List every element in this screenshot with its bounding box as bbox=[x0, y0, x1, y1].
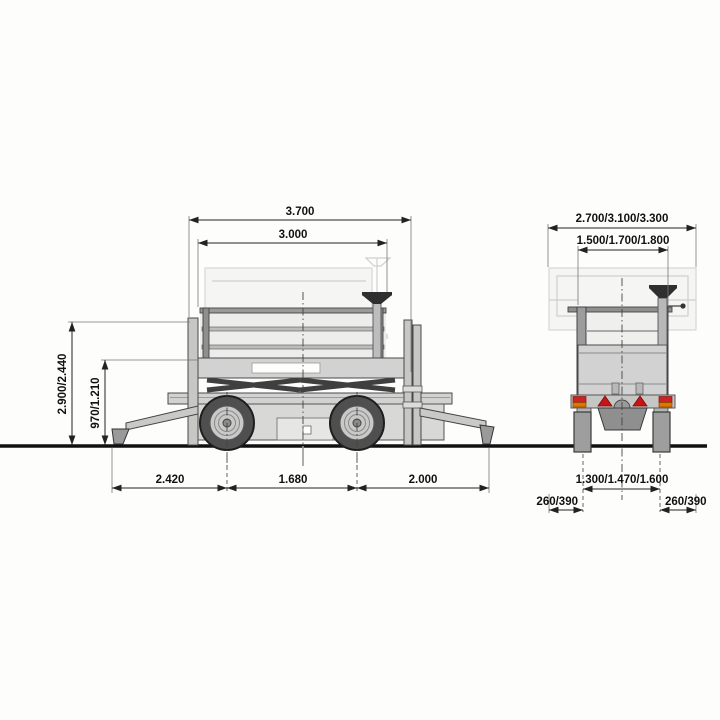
side-platform-base bbox=[196, 358, 404, 378]
rear-view bbox=[549, 268, 696, 500]
dim-wheelbase-label: 1.680 bbox=[279, 474, 308, 486]
right-outrigger-foot bbox=[480, 425, 494, 444]
rear-left-wheel bbox=[574, 412, 591, 452]
dim-track-label: 1.300/1.470/1.600 bbox=[576, 474, 669, 486]
rear-beacon-knob bbox=[680, 303, 685, 308]
side-name-plate bbox=[252, 363, 320, 373]
side-scissor-arms bbox=[207, 380, 395, 390]
dim-left-offset-label: 260/390 bbox=[536, 496, 578, 508]
right-tail-lamp bbox=[659, 397, 672, 408]
dim-rear-span-label: 2.420 bbox=[156, 474, 185, 486]
dim-inner-width-label: 1.500/1.700/1.800 bbox=[577, 235, 670, 247]
side-view bbox=[112, 258, 494, 470]
dim-front-span-label: 2.000 bbox=[409, 474, 438, 486]
technical-drawing: 3.700 3.000 2.900/2.440 970/1.210 2.420 … bbox=[0, 0, 720, 720]
dim-height-label: 2.900/2.440 bbox=[57, 354, 69, 415]
left-outrigger-arm bbox=[126, 406, 198, 430]
dim-overall-length-label: 3.700 bbox=[286, 206, 315, 218]
rear-axle bbox=[598, 408, 647, 430]
dim-right-offset-label: 260/390 bbox=[665, 496, 707, 508]
dim-inner-length-label: 3.000 bbox=[279, 229, 308, 241]
rear-platform-body bbox=[578, 345, 667, 395]
dim-platform-height-label: 970/1.210 bbox=[90, 377, 102, 428]
left-outrigger-foot bbox=[112, 429, 129, 444]
left-tail-lamp bbox=[573, 397, 586, 408]
dim-overall-width-label: 2.700/3.100/3.300 bbox=[576, 213, 669, 225]
side-ghost-beacon-icon bbox=[366, 258, 390, 266]
dimensional-drawing-page: 3.700 3.000 2.900/2.440 970/1.210 2.420 … bbox=[0, 0, 720, 720]
rear-right-wheel bbox=[653, 412, 670, 452]
